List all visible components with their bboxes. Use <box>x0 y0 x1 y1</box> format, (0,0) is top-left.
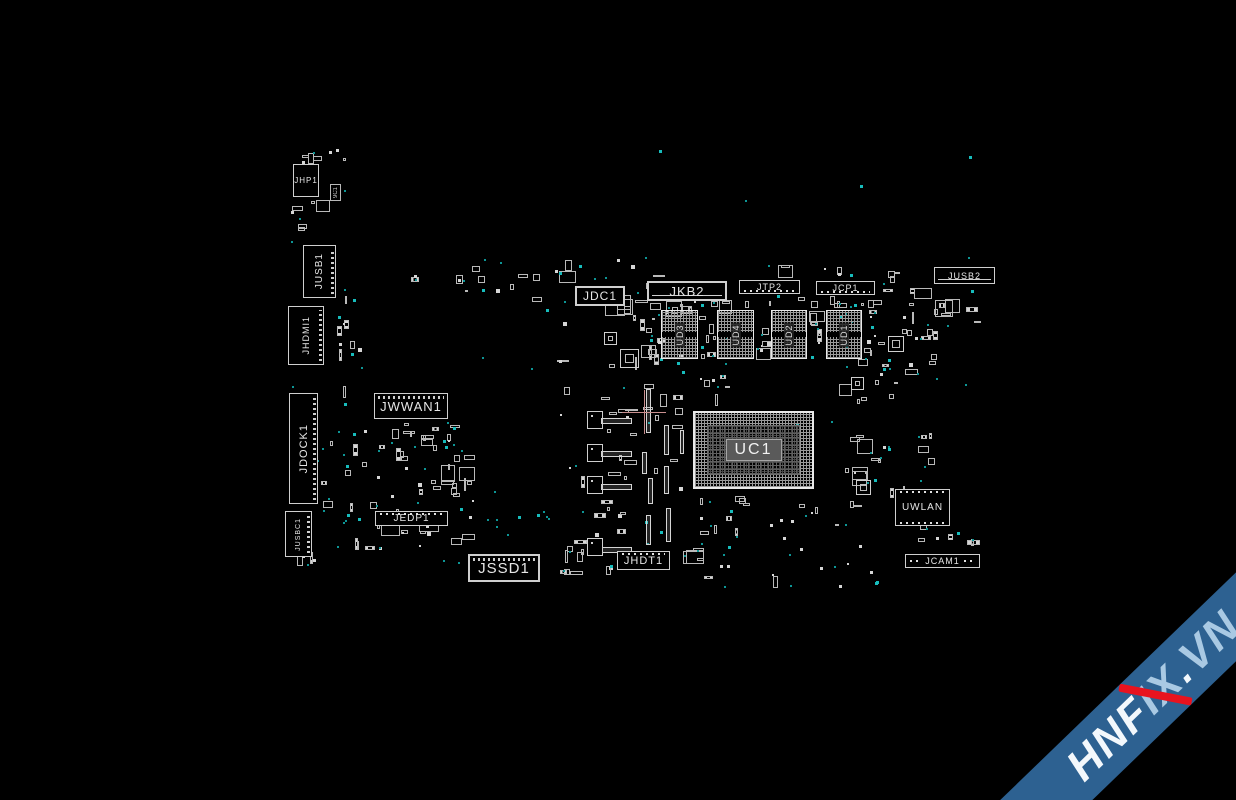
test-point <box>637 292 639 294</box>
component <box>510 284 514 290</box>
test-point <box>461 450 463 452</box>
test-point <box>728 546 731 549</box>
test-point <box>507 534 509 536</box>
chip-label: UD4 <box>731 322 741 347</box>
component <box>933 331 938 340</box>
component <box>889 394 894 399</box>
test-point <box>717 386 719 388</box>
component <box>883 289 893 292</box>
test-point <box>845 524 847 526</box>
pin1-dot <box>591 448 593 450</box>
test-point <box>850 306 852 308</box>
component <box>432 427 439 431</box>
component <box>441 465 455 482</box>
component <box>402 532 404 534</box>
test-point <box>883 368 886 371</box>
pin1-dot <box>591 480 593 482</box>
test-point <box>518 516 521 519</box>
component <box>431 480 436 484</box>
test-point <box>579 265 582 268</box>
chip-uc1[interactable]: UC1 <box>693 411 814 489</box>
test-point <box>291 241 293 243</box>
connector-jcam1[interactable]: JCAM1 <box>905 554 980 568</box>
component <box>818 333 821 336</box>
component <box>727 565 730 568</box>
component <box>921 336 931 340</box>
test-point <box>500 262 502 264</box>
component <box>839 585 842 588</box>
component <box>815 507 818 514</box>
component <box>649 346 652 360</box>
test-point <box>343 522 345 524</box>
component <box>462 534 475 540</box>
component <box>857 399 860 404</box>
pin-row <box>331 249 334 294</box>
inductor <box>601 451 632 457</box>
component <box>818 342 820 344</box>
test-point <box>918 436 920 438</box>
test-point <box>484 259 486 261</box>
component <box>867 340 871 344</box>
component <box>650 303 661 310</box>
component <box>391 495 394 498</box>
connector-jwwan1[interactable]: JWWAN1 <box>374 393 448 419</box>
component <box>679 487 683 491</box>
board-canvas[interactable]: HNFIX.VN 9C1UC1UD3UD4UD2UD1JHP1JUSB1JHDM… <box>0 0 1236 800</box>
test-point <box>358 518 361 521</box>
component <box>874 335 876 337</box>
test-point <box>453 427 456 430</box>
component <box>362 462 367 467</box>
component <box>720 565 723 568</box>
component <box>427 532 431 536</box>
component <box>308 153 314 164</box>
component <box>873 300 882 305</box>
test-point <box>564 301 566 303</box>
component <box>577 552 583 562</box>
component <box>936 537 939 540</box>
test-point <box>924 466 926 468</box>
test-point <box>443 440 446 443</box>
test-point <box>546 309 549 312</box>
test-point <box>668 307 670 309</box>
component <box>401 456 408 461</box>
test-point <box>322 448 324 450</box>
test-point <box>458 562 460 564</box>
test-point <box>361 367 363 369</box>
component <box>420 531 426 534</box>
component <box>939 303 945 308</box>
test-point <box>443 560 445 562</box>
inductor <box>680 430 684 454</box>
test-point <box>684 555 686 557</box>
test-point <box>445 446 448 449</box>
component <box>453 493 460 497</box>
component <box>581 476 585 488</box>
component <box>918 446 929 453</box>
inductor <box>646 515 651 545</box>
test-point <box>677 362 680 365</box>
chip-label: UD1 <box>839 322 849 347</box>
test-point <box>761 334 763 336</box>
component <box>640 319 645 331</box>
test-point <box>722 375 724 377</box>
qfn-inner-pad <box>625 354 634 363</box>
component <box>410 431 412 437</box>
test-point <box>713 302 715 304</box>
component <box>907 330 912 336</box>
test-point <box>701 346 704 349</box>
test-point <box>926 528 928 530</box>
test-point <box>865 358 867 360</box>
test-point <box>582 511 584 513</box>
component <box>839 384 852 396</box>
component <box>914 288 932 299</box>
component <box>931 354 937 360</box>
component <box>856 435 864 438</box>
test-point <box>344 289 346 291</box>
connector-jssd1[interactable]: JSSD1 <box>468 554 540 582</box>
test-point <box>343 454 345 456</box>
component <box>858 359 868 366</box>
test-point <box>453 444 455 446</box>
component <box>594 513 606 518</box>
test-point <box>658 314 660 316</box>
chip-ud2[interactable]: UD2 <box>771 310 807 359</box>
connector-jkb2[interactable]: JKB2 <box>647 281 727 301</box>
test-point <box>871 326 874 329</box>
component <box>418 483 422 487</box>
test-point <box>811 356 814 359</box>
chip-ud3[interactable]: UD3 <box>661 310 698 359</box>
component <box>377 476 380 479</box>
component <box>902 329 907 334</box>
test-point <box>725 363 727 365</box>
test-point <box>337 546 339 548</box>
component <box>915 337 918 340</box>
test-point <box>920 338 922 340</box>
component <box>700 517 703 520</box>
inductor <box>642 452 647 474</box>
component <box>845 468 849 473</box>
test-point <box>463 280 465 282</box>
regulator-ic <box>587 538 603 556</box>
connector-label: JKB2 <box>669 284 704 299</box>
component <box>800 548 803 551</box>
test-point <box>947 325 949 327</box>
test-point <box>850 274 853 277</box>
test-point <box>936 378 938 380</box>
component <box>465 290 468 292</box>
component <box>655 415 659 421</box>
component <box>617 529 626 534</box>
component <box>811 512 813 514</box>
pin-row <box>307 515 310 553</box>
component <box>870 350 872 356</box>
pin-row <box>900 491 945 493</box>
component <box>311 201 315 204</box>
component <box>564 387 570 395</box>
test-point <box>697 550 699 552</box>
chip-ud4[interactable]: UD4 <box>717 310 754 359</box>
regulator-ic <box>587 444 603 462</box>
component <box>673 395 683 400</box>
connector-jtp2[interactable]: JTP2 <box>739 280 800 294</box>
connector-label: JTP2 <box>757 282 782 292</box>
connector-jdc1[interactable]: JDC1 <box>575 286 625 306</box>
component <box>725 386 730 388</box>
connector-jusb2[interactable]: JUSB2 <box>934 267 995 284</box>
connector-jdock1[interactable]: JDOCK1 <box>289 393 318 504</box>
component <box>467 481 472 485</box>
test-point <box>496 519 498 521</box>
test-point <box>790 585 792 587</box>
connector-jedp1[interactable]: JEDP1 <box>375 511 448 526</box>
test-point <box>789 554 791 556</box>
component <box>772 574 774 576</box>
connector-jhp1[interactable]: JHP1 <box>293 164 319 197</box>
component <box>835 524 839 526</box>
test-point <box>730 510 733 513</box>
component <box>706 335 709 343</box>
test-point <box>323 510 325 512</box>
test-point <box>537 514 540 517</box>
test-point <box>548 518 550 520</box>
test-point <box>757 348 759 350</box>
qfn-chip <box>851 377 864 390</box>
component <box>633 315 636 321</box>
component <box>630 433 637 436</box>
chip-label: UD2 <box>784 322 794 347</box>
component <box>868 300 874 308</box>
component <box>313 156 322 161</box>
component <box>419 545 421 547</box>
component <box>675 408 683 415</box>
test-point <box>889 368 891 370</box>
test-point <box>376 505 378 507</box>
connector-label: JEDP1 <box>393 513 429 524</box>
component <box>745 301 749 308</box>
test-point <box>379 547 381 549</box>
component <box>769 301 771 306</box>
component <box>861 397 867 401</box>
component <box>532 297 542 302</box>
component <box>894 272 900 274</box>
component <box>345 296 347 304</box>
test-point <box>651 335 653 337</box>
test-point <box>482 289 485 292</box>
pin-row <box>313 397 316 500</box>
component <box>609 412 617 415</box>
test-point <box>563 570 565 572</box>
test-point <box>815 323 817 325</box>
connector-jhdt1[interactable]: JHDT1 <box>617 551 670 570</box>
component <box>878 342 885 345</box>
component <box>316 200 330 212</box>
inductor <box>664 425 669 455</box>
qfn-inner-pad <box>608 336 614 342</box>
test-point <box>569 551 571 553</box>
component <box>433 486 441 490</box>
test-point <box>870 452 872 454</box>
test-point <box>313 152 315 154</box>
test-point <box>709 501 711 503</box>
component <box>701 354 705 359</box>
component <box>847 563 849 565</box>
component <box>574 540 587 544</box>
test-point <box>712 355 714 357</box>
test-point <box>723 554 725 556</box>
test-point <box>710 525 712 527</box>
test-point <box>927 324 929 326</box>
component <box>791 520 794 523</box>
component <box>760 349 763 352</box>
component <box>337 326 342 336</box>
component <box>635 300 648 303</box>
test-point <box>346 465 349 468</box>
component <box>343 386 346 398</box>
component <box>780 519 783 522</box>
component <box>712 379 715 382</box>
chip-label: UC1 <box>725 439 781 461</box>
component <box>838 273 841 276</box>
component <box>601 397 610 400</box>
test-point <box>353 433 356 436</box>
test-point <box>659 150 662 153</box>
test-point <box>968 257 970 259</box>
component <box>607 429 611 433</box>
component <box>854 472 856 474</box>
pin-row <box>319 310 322 361</box>
test-point <box>344 190 346 192</box>
component <box>704 380 710 387</box>
component <box>743 503 750 506</box>
test-point <box>768 265 770 267</box>
component <box>700 378 702 380</box>
connector-label: JDOCK1 <box>298 424 310 473</box>
component <box>496 289 500 293</box>
test-point <box>645 257 647 259</box>
test-point <box>424 468 426 470</box>
component <box>909 363 913 367</box>
test-point <box>353 299 356 302</box>
component <box>853 505 862 507</box>
test-point <box>724 586 726 588</box>
connector-label: JHDT1 <box>624 555 663 567</box>
component <box>974 321 981 323</box>
component <box>565 260 572 271</box>
test-point <box>965 384 967 386</box>
component <box>343 158 346 161</box>
test-point <box>559 272 562 275</box>
component <box>905 369 918 375</box>
connector-label: JCAM1 <box>922 556 963 566</box>
test-point <box>605 277 607 279</box>
test-point <box>831 421 833 423</box>
component <box>607 507 610 511</box>
connector-label: JUSBC1 <box>295 518 302 551</box>
component <box>421 439 433 446</box>
component <box>890 488 894 498</box>
test-point <box>575 465 577 467</box>
component <box>966 307 978 312</box>
component <box>336 149 339 152</box>
component <box>918 538 925 542</box>
component <box>883 446 886 449</box>
component <box>559 360 562 363</box>
component <box>773 576 778 588</box>
chip-ud1[interactable]: UD1 <box>826 310 862 359</box>
connector-jusbc1[interactable]: JUSBC1 <box>285 511 312 557</box>
test-point <box>344 403 347 406</box>
component <box>323 501 333 508</box>
component <box>350 503 353 512</box>
test-point <box>623 387 625 389</box>
connector-label: JDC1 <box>583 289 617 303</box>
test-point <box>546 516 548 518</box>
qfn-chip <box>888 336 904 352</box>
connector-jhdmi1[interactable]: JHDMI1 <box>288 306 324 365</box>
component <box>379 445 385 449</box>
component <box>909 303 914 306</box>
component <box>595 533 599 537</box>
connector-label: JHP1 <box>294 176 318 185</box>
component <box>820 567 823 570</box>
component <box>890 276 895 283</box>
test-point <box>660 531 663 534</box>
qfn-chip <box>620 349 639 368</box>
component <box>419 489 423 495</box>
qfn-inner-pad <box>892 340 899 347</box>
component <box>291 211 294 214</box>
inductor <box>646 389 651 433</box>
component <box>654 468 658 474</box>
component <box>624 460 637 465</box>
component <box>365 546 375 550</box>
component <box>910 288 915 294</box>
component <box>478 276 485 283</box>
component <box>770 524 773 527</box>
connector-uwlan[interactable]: UWLAN <box>895 489 950 526</box>
component <box>948 534 953 540</box>
component <box>404 423 409 426</box>
test-point <box>874 479 877 482</box>
test-point <box>854 304 857 307</box>
connector-jusb1[interactable]: JUSB1 <box>303 245 336 298</box>
component <box>454 455 460 462</box>
test-point <box>745 200 747 202</box>
component <box>878 459 881 463</box>
component <box>646 328 652 333</box>
connector-jcp1[interactable]: JCP1 <box>816 281 875 295</box>
test-point <box>417 502 419 504</box>
component <box>459 467 475 481</box>
test-point <box>846 366 848 368</box>
component <box>405 467 408 470</box>
component <box>798 297 805 301</box>
component <box>912 312 914 324</box>
component <box>350 341 355 349</box>
test-point <box>299 218 301 220</box>
test-point <box>834 566 836 568</box>
test-point <box>496 526 498 528</box>
test-point <box>460 508 463 511</box>
test-point <box>701 543 703 545</box>
test-point <box>378 450 380 452</box>
component <box>329 151 332 154</box>
component <box>560 414 562 416</box>
component <box>945 299 960 313</box>
